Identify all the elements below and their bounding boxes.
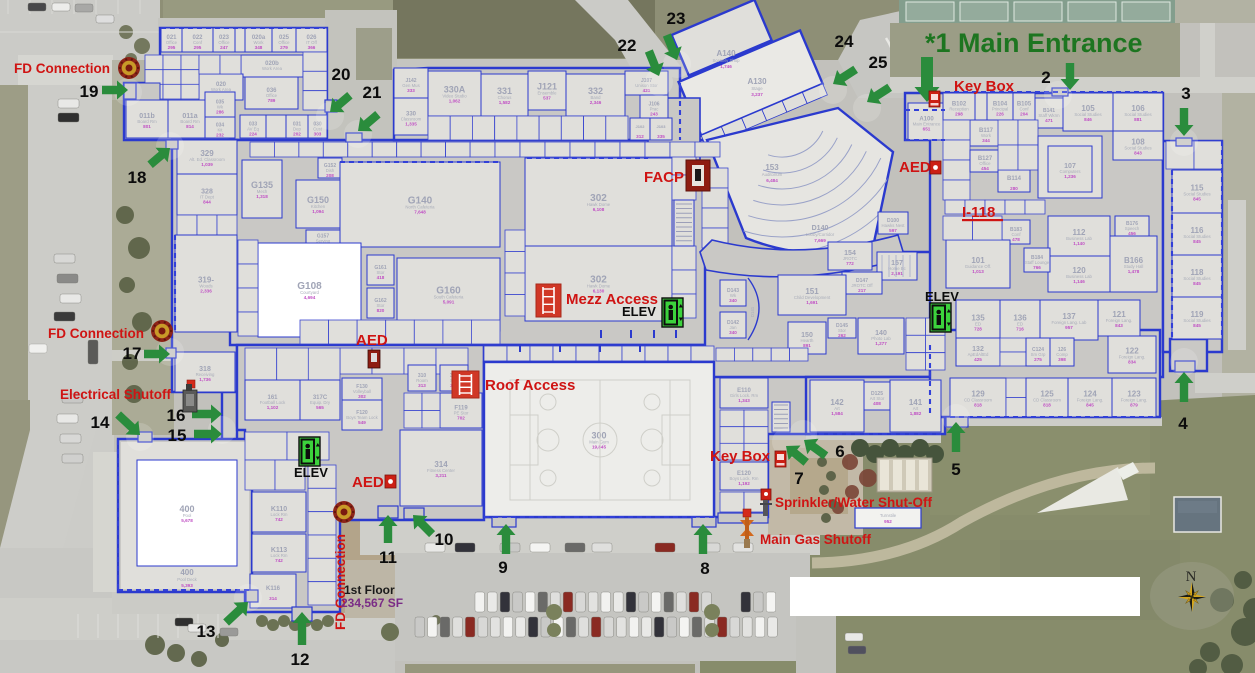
svg-text:ELEV: ELEV <box>294 465 328 480</box>
svg-text:340: 340 <box>729 330 737 335</box>
svg-text:19: 19 <box>80 82 99 101</box>
svg-text:9: 9 <box>498 558 507 577</box>
svg-text:FD Connection: FD Connection <box>48 326 144 341</box>
svg-text:6,484: 6,484 <box>766 178 778 183</box>
svg-text:17: 17 <box>123 344 142 363</box>
svg-text:275: 275 <box>1034 357 1042 362</box>
svg-text:957: 957 <box>1065 325 1073 330</box>
svg-text:295: 295 <box>168 45 176 50</box>
svg-text:21: 21 <box>363 83 382 102</box>
svg-text:789: 789 <box>268 98 276 103</box>
svg-text:Key Box: Key Box <box>710 448 771 465</box>
svg-text:1,318: 1,318 <box>256 194 268 199</box>
svg-text:742: 742 <box>275 517 283 522</box>
svg-text:7: 7 <box>794 469 803 488</box>
svg-text:Main Gas Shutoff: Main Gas Shutoff <box>760 532 872 547</box>
svg-text:280: 280 <box>1010 186 1018 191</box>
svg-text:801: 801 <box>143 124 151 129</box>
svg-text:7,669: 7,669 <box>814 238 826 243</box>
svg-text:1st Floor: 1st Floor <box>344 583 395 597</box>
svg-text:471: 471 <box>1045 118 1053 123</box>
svg-text:FD Connection: FD Connection <box>14 61 110 76</box>
svg-text:881: 881 <box>1134 117 1142 122</box>
svg-text:2,191: 2,191 <box>891 271 903 276</box>
svg-text:Roof Access: Roof Access <box>485 377 575 394</box>
svg-text:Sprinkler/Water Shut-Off: Sprinkler/Water Shut-Off <box>775 495 933 510</box>
svg-text:A140: A140 <box>716 49 736 58</box>
svg-text:1,343: 1,343 <box>738 398 750 403</box>
svg-text:23: 23 <box>667 9 686 28</box>
svg-text:418: 418 <box>377 275 385 280</box>
svg-text:728: 728 <box>974 327 982 332</box>
svg-text:314: 314 <box>269 596 277 601</box>
svg-text:845: 845 <box>1193 281 1201 286</box>
svg-text:224: 224 <box>249 132 257 137</box>
svg-text:1,335: 1,335 <box>405 122 417 127</box>
svg-text:312: 312 <box>636 134 644 139</box>
svg-text:153: 153 <box>765 163 779 172</box>
svg-text:13: 13 <box>197 622 216 641</box>
svg-text:AED: AED <box>352 474 384 491</box>
svg-text:1,094: 1,094 <box>312 209 324 214</box>
svg-text:N: N <box>1186 569 1197 585</box>
svg-text:1,236: 1,236 <box>1064 174 1076 179</box>
svg-text:818: 818 <box>1043 403 1051 408</box>
svg-text:844: 844 <box>203 200 211 205</box>
svg-text:716: 716 <box>1016 327 1024 332</box>
svg-text:11: 11 <box>379 548 397 567</box>
svg-text:D141: D141 <box>750 306 755 317</box>
svg-text:2: 2 <box>1041 68 1050 87</box>
svg-text:Electrical Shutoff: Electrical Shutoff <box>60 387 172 402</box>
svg-text:702: 702 <box>457 416 465 421</box>
svg-text:226: 226 <box>996 112 1004 117</box>
svg-text:3: 3 <box>1181 84 1190 103</box>
svg-text:20: 20 <box>332 65 351 84</box>
svg-text:J102: J102 <box>636 124 646 129</box>
svg-text:1,062: 1,062 <box>449 99 461 104</box>
svg-text:Work Area: Work Area <box>262 66 283 71</box>
svg-text:1,691: 1,691 <box>806 300 818 305</box>
svg-text:303: 303 <box>314 132 322 137</box>
svg-text:286: 286 <box>216 110 224 115</box>
svg-text:Stage: Stage <box>751 86 763 91</box>
svg-text:549: 549 <box>358 420 366 425</box>
svg-text:243: 243 <box>650 112 658 117</box>
svg-text:366: 366 <box>308 45 316 50</box>
svg-text:313: 313 <box>418 383 426 388</box>
svg-text:FACP: FACP <box>644 169 684 186</box>
svg-text:845: 845 <box>1086 403 1094 408</box>
svg-text:845: 845 <box>1193 323 1201 328</box>
svg-text:8: 8 <box>700 559 709 578</box>
svg-text:5,678: 5,678 <box>181 518 193 523</box>
svg-text:398: 398 <box>1058 357 1066 362</box>
svg-text:5: 5 <box>951 460 960 479</box>
svg-text:4: 4 <box>1178 414 1188 433</box>
svg-text:247: 247 <box>220 45 228 50</box>
svg-text:22: 22 <box>618 36 637 55</box>
svg-text:7,648: 7,648 <box>414 210 426 215</box>
svg-text:1,582: 1,582 <box>499 100 511 105</box>
svg-text:B114: B114 <box>1007 176 1022 182</box>
svg-text:400: 400 <box>180 568 194 577</box>
svg-text:I-118: I-118 <box>962 204 995 221</box>
svg-text:891: 891 <box>803 343 811 348</box>
svg-text:14: 14 <box>91 413 110 432</box>
svg-text:846: 846 <box>1084 117 1092 122</box>
svg-text:25: 25 <box>869 53 888 72</box>
svg-text:15: 15 <box>168 426 187 445</box>
svg-text:814: 814 <box>186 124 194 129</box>
svg-text:19,845: 19,845 <box>592 445 606 450</box>
svg-text:834: 834 <box>1128 360 1136 365</box>
svg-text:10: 10 <box>435 530 454 549</box>
svg-text:818: 818 <box>974 403 982 408</box>
svg-text:537: 537 <box>543 96 551 101</box>
svg-text:*1 Main Entrance: *1 Main Entrance <box>925 28 1143 58</box>
svg-text:1,039: 1,039 <box>201 162 213 167</box>
svg-text:208: 208 <box>326 173 334 178</box>
svg-text:ELEV: ELEV <box>925 289 959 304</box>
svg-text:1,746: 1,746 <box>720 64 732 69</box>
svg-text:766: 766 <box>1033 265 1041 270</box>
svg-text:1,736: 1,736 <box>199 377 211 382</box>
svg-text:456: 456 <box>1128 231 1136 236</box>
svg-text:1,584: 1,584 <box>831 411 843 416</box>
svg-text:1,882: 1,882 <box>910 411 922 416</box>
svg-text:820: 820 <box>377 308 385 313</box>
svg-text:565: 565 <box>316 405 324 410</box>
svg-text:845: 845 <box>1193 197 1201 202</box>
svg-text:202: 202 <box>293 132 301 137</box>
svg-text:1,140: 1,140 <box>1073 241 1085 246</box>
svg-text:Pool Deck: Pool Deck <box>177 577 197 582</box>
svg-text:772: 772 <box>846 261 854 266</box>
svg-text:234,567 SF: 234,567 SF <box>341 596 403 610</box>
svg-text:217: 217 <box>858 288 866 293</box>
svg-text:2,336: 2,336 <box>200 289 212 294</box>
svg-text:FD Connection: FD Connection <box>333 534 348 630</box>
svg-text:AED: AED <box>356 332 388 349</box>
svg-text:4,694: 4,694 <box>304 295 316 300</box>
svg-text:845: 845 <box>1193 239 1201 244</box>
svg-text:333: 333 <box>407 88 415 93</box>
svg-text:1,478: 1,478 <box>1128 269 1140 274</box>
svg-text:1,013: 1,013 <box>972 269 984 274</box>
svg-text:295: 295 <box>194 45 202 50</box>
svg-text:D140: D140 <box>812 225 829 232</box>
svg-text:6,108: 6,108 <box>593 207 605 212</box>
svg-text:Scenery Shop: Scenery Shop <box>713 58 741 63</box>
svg-text:279: 279 <box>280 45 288 50</box>
svg-text:3,211: 3,211 <box>435 473 447 478</box>
svg-text:2,346: 2,346 <box>590 100 602 105</box>
svg-text:Key Box: Key Box <box>954 78 1015 95</box>
svg-text:1,146: 1,146 <box>1073 279 1085 284</box>
svg-text:6: 6 <box>835 442 844 461</box>
svg-text:408: 408 <box>873 401 881 406</box>
svg-text:232: 232 <box>216 133 224 138</box>
svg-text:3,237: 3,237 <box>751 92 763 97</box>
svg-text:344: 344 <box>982 138 990 143</box>
svg-text:5,091: 5,091 <box>443 300 455 305</box>
svg-text:843: 843 <box>1115 323 1123 328</box>
svg-text:AED: AED <box>899 159 931 176</box>
svg-text:335: 335 <box>657 134 665 139</box>
svg-text:K116: K116 <box>266 586 281 592</box>
svg-text:843: 843 <box>1134 151 1142 156</box>
svg-text:302: 302 <box>358 394 366 399</box>
svg-text:18: 18 <box>128 168 147 187</box>
svg-text:298: 298 <box>955 112 963 117</box>
svg-text:24: 24 <box>835 32 854 51</box>
svg-text:879: 879 <box>1130 403 1138 408</box>
svg-text:12: 12 <box>291 650 310 669</box>
svg-text:Turnstile: Turnstile <box>880 513 897 518</box>
svg-text:1,277: 1,277 <box>875 341 887 346</box>
svg-text:5,393: 5,393 <box>181 583 193 588</box>
svg-text:597: 597 <box>889 228 897 233</box>
svg-text:952: 952 <box>884 519 892 524</box>
svg-text:425: 425 <box>974 357 982 362</box>
svg-text:651: 651 <box>923 127 931 132</box>
svg-text:454: 454 <box>981 166 989 171</box>
svg-text:Lobby/Corridor: Lobby/Corridor <box>806 232 835 237</box>
svg-text:340: 340 <box>729 298 737 303</box>
svg-text:J103: J103 <box>657 124 667 129</box>
svg-text:204: 204 <box>1020 112 1028 117</box>
svg-text:262: 262 <box>838 333 846 338</box>
svg-text:A130: A130 <box>747 77 767 86</box>
svg-text:1,192: 1,192 <box>738 481 750 486</box>
svg-text:742: 742 <box>275 558 283 563</box>
svg-text:Auditorium: Auditorium <box>762 172 783 177</box>
svg-text:1,102: 1,102 <box>267 405 279 410</box>
svg-text:348: 348 <box>255 45 263 50</box>
svg-text:ELEV: ELEV <box>622 304 656 319</box>
svg-text:478: 478 <box>1012 237 1020 242</box>
